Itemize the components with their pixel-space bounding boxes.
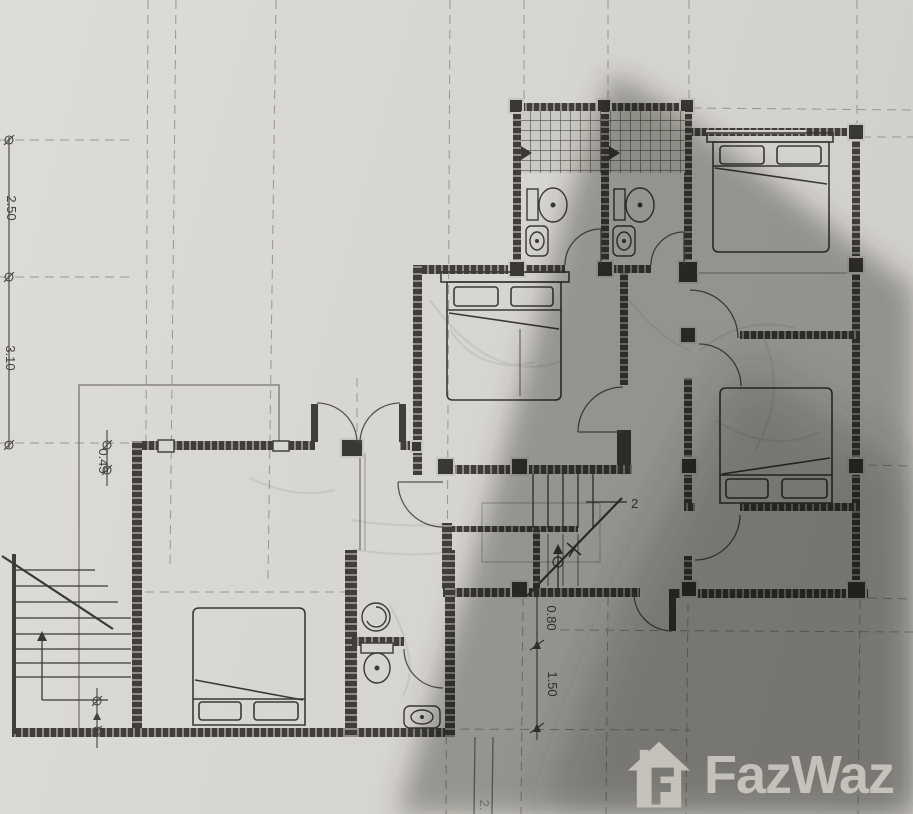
watermark-brand-text: FazWaz xyxy=(704,738,894,812)
shower-left xyxy=(521,111,601,173)
dim-label-left-lower: 3.10 xyxy=(3,345,18,370)
terrace-door-arc xyxy=(634,593,672,631)
dim-label-stair-lower: 1.50 xyxy=(545,671,560,696)
bed-middle-right xyxy=(720,388,832,503)
toilet-tank xyxy=(527,189,538,220)
footer-faint-mark: 2. xyxy=(477,800,492,811)
toilet-tank xyxy=(361,643,393,653)
stairs-center xyxy=(527,474,627,596)
up-arrow-icon xyxy=(553,544,563,554)
floorplan-scan: 2.50 3.10 0.45 0.80 1.50 2 2. FazWaz xyxy=(0,0,913,814)
vestibule-door-arc xyxy=(398,482,443,527)
door-leaves xyxy=(311,404,406,442)
bathroom-bottom xyxy=(361,603,440,728)
center-bedroom-door-arc xyxy=(578,387,623,432)
entry-door-right-arc xyxy=(360,403,400,443)
bedroom-tr-door-arc xyxy=(690,290,738,338)
bedroom-mr-door-arc xyxy=(699,344,741,386)
floorplan-drawing: 2.50 3.10 0.45 0.80 1.50 2 2. xyxy=(0,0,913,814)
bed-top-right xyxy=(707,133,833,252)
house-with-f-icon xyxy=(622,738,696,812)
stair-treads xyxy=(16,570,131,677)
walls xyxy=(12,103,868,737)
dim-label-stair-upper: 0.80 xyxy=(544,605,559,630)
toilet-tank xyxy=(614,189,625,220)
pencil-smudges xyxy=(250,295,820,697)
bath-bottom-door-arc xyxy=(404,649,443,688)
watermark: FazWaz xyxy=(622,738,894,812)
stairs-exterior xyxy=(2,556,131,700)
shower-right xyxy=(609,111,685,173)
dim-label-left-upper: 2.50 xyxy=(4,195,19,220)
entry-door-left-arc xyxy=(317,403,357,443)
up-arrow-icon xyxy=(37,631,47,641)
dim-label-entry-wall: 0.45 xyxy=(96,448,111,473)
bed-bottom-left xyxy=(193,608,305,725)
bathroom1-door-arc xyxy=(565,229,601,265)
stair-floor-marker: 2 xyxy=(631,496,638,511)
room-br-door-arc xyxy=(695,515,740,560)
